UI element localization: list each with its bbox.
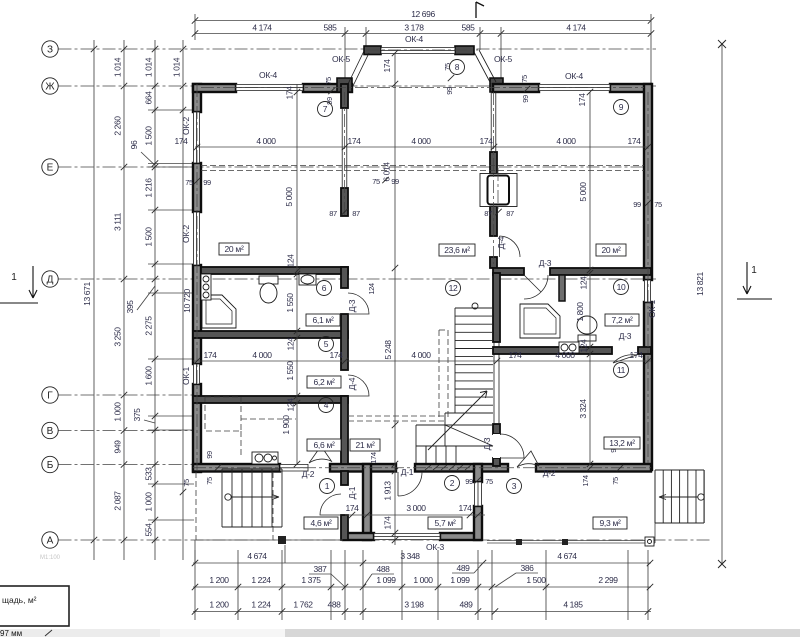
svg-text:75: 75 — [372, 177, 380, 186]
svg-text:99: 99 — [465, 477, 473, 486]
svg-text:75: 75 — [654, 200, 662, 209]
svg-text:174: 174 — [369, 452, 378, 464]
svg-text:174: 174 — [382, 59, 392, 73]
svg-text:4 174: 4 174 — [252, 23, 272, 33]
svg-text:99: 99 — [205, 451, 214, 459]
svg-text:174: 174 — [330, 350, 344, 360]
svg-text:5 000: 5 000 — [284, 187, 294, 207]
svg-text:4 000: 4 000 — [411, 350, 431, 360]
svg-text:124: 124 — [579, 339, 589, 353]
svg-text:ОК-1: ОК-1 — [181, 366, 191, 384]
svg-text:4 185: 4 185 — [563, 600, 583, 610]
svg-text:1 500: 1 500 — [144, 126, 154, 146]
svg-text:1 800: 1 800 — [575, 302, 585, 322]
svg-text:87: 87 — [506, 209, 514, 218]
svg-text:124: 124 — [367, 283, 376, 295]
svg-text:124: 124 — [286, 254, 296, 268]
svg-text:4 674: 4 674 — [247, 551, 267, 561]
svg-text:3 198: 3 198 — [404, 600, 424, 610]
svg-text:1 014: 1 014 — [172, 57, 182, 77]
svg-text:ОК-3: ОК-3 — [426, 542, 444, 552]
svg-text:7,2 м²: 7,2 м² — [611, 315, 633, 325]
svg-text:1 762: 1 762 — [293, 600, 313, 610]
svg-text:6,6 м²: 6,6 м² — [313, 440, 335, 450]
svg-text:3 178: 3 178 — [404, 23, 424, 33]
svg-text:375: 375 — [132, 408, 142, 422]
svg-text:1: 1 — [325, 481, 330, 491]
svg-text:3: 3 — [512, 481, 517, 491]
svg-text:4 000: 4 000 — [256, 136, 276, 146]
svg-text:Д-4: Д-4 — [496, 236, 506, 249]
svg-text:4 000: 4 000 — [556, 136, 576, 146]
svg-text:3 000: 3 000 — [406, 503, 426, 513]
svg-text:75: 75 — [443, 63, 452, 71]
svg-text:9,3 м²: 9,3 м² — [599, 518, 621, 528]
svg-text:949: 949 — [113, 440, 123, 454]
svg-text:174: 174 — [346, 503, 360, 513]
svg-text:1 600: 1 600 — [144, 366, 154, 386]
svg-text:1: 1 — [751, 265, 757, 276]
svg-text:Ж: Ж — [45, 81, 55, 92]
svg-text:3 324: 3 324 — [578, 399, 588, 419]
svg-text:12: 12 — [449, 283, 458, 293]
svg-text:3 348: 3 348 — [400, 551, 420, 561]
svg-text:ОК-4: ОК-4 — [565, 71, 583, 81]
svg-text:1 200: 1 200 — [209, 575, 229, 585]
svg-text:4,6 м²: 4,6 м² — [310, 518, 332, 528]
svg-text:1 000: 1 000 — [144, 492, 154, 512]
svg-text:4 674: 4 674 — [557, 551, 577, 561]
svg-text:Г: Г — [47, 390, 53, 401]
svg-text:87: 87 — [329, 209, 337, 218]
svg-text:ОК-5: ОК-5 — [494, 54, 512, 64]
svg-text:75: 75 — [611, 477, 620, 485]
svg-text:1 099: 1 099 — [450, 575, 470, 585]
svg-text:99: 99 — [203, 178, 211, 187]
svg-text:З: З — [47, 44, 53, 55]
svg-text:554: 554 — [144, 523, 154, 537]
svg-text:5: 5 — [324, 339, 329, 349]
svg-text:ОК-4: ОК-4 — [405, 34, 423, 44]
svg-text:75: 75 — [485, 477, 493, 486]
svg-text:1 550: 1 550 — [285, 361, 295, 381]
svg-text:75: 75 — [185, 178, 193, 187]
svg-text:6,1 м²: 6,1 м² — [312, 315, 334, 325]
svg-text:1 014: 1 014 — [113, 57, 123, 77]
svg-text:174: 174 — [509, 350, 523, 360]
svg-text:5 248: 5 248 — [383, 340, 393, 360]
svg-text:4: 4 — [324, 400, 329, 410]
svg-text:M1:100: M1:100 — [40, 555, 61, 561]
svg-text:97 мм: 97 мм — [0, 629, 22, 637]
svg-text:10: 10 — [617, 282, 626, 292]
svg-text:489: 489 — [460, 600, 474, 610]
svg-text:174: 174 — [630, 350, 644, 360]
svg-text:ОК-1: ОК-1 — [647, 299, 657, 317]
svg-text:Д-2: Д-2 — [543, 468, 556, 478]
svg-text:174: 174 — [581, 475, 590, 487]
svg-text:87: 87 — [484, 209, 492, 218]
svg-text:1 375: 1 375 — [301, 575, 321, 585]
svg-text:21 м²: 21 м² — [356, 440, 375, 450]
svg-text:щадь, м²: щадь, м² — [2, 595, 37, 605]
svg-text:ОК-2: ОК-2 — [181, 224, 191, 242]
svg-text:99: 99 — [521, 95, 530, 103]
svg-text:174: 174 — [285, 86, 295, 100]
svg-text:174: 174 — [383, 516, 393, 530]
svg-text:99: 99 — [445, 87, 454, 95]
svg-text:1 224: 1 224 — [251, 575, 271, 585]
svg-text:124: 124 — [286, 398, 296, 412]
svg-text:Д-3: Д-3 — [482, 437, 492, 450]
svg-text:6,2 м²: 6,2 м² — [313, 377, 335, 387]
svg-text:2 087: 2 087 — [113, 491, 123, 511]
svg-text:Б: Б — [47, 460, 54, 471]
svg-text:1 224: 1 224 — [251, 600, 271, 610]
svg-text:174: 174 — [628, 136, 642, 146]
svg-text:6: 6 — [322, 283, 327, 293]
svg-text:1 000: 1 000 — [113, 402, 123, 422]
svg-text:ОК-5: ОК-5 — [332, 54, 350, 64]
svg-text:1 913: 1 913 — [383, 481, 393, 501]
svg-text:174: 174 — [459, 503, 473, 513]
svg-text:Д-4: Д-4 — [347, 377, 357, 390]
svg-text:10 720: 10 720 — [182, 289, 192, 313]
svg-text:386: 386 — [521, 563, 535, 573]
svg-text:489: 489 — [457, 563, 471, 573]
svg-text:664: 664 — [144, 91, 154, 105]
svg-text:3 111: 3 111 — [113, 212, 123, 231]
svg-text:13 821: 13 821 — [695, 272, 705, 296]
svg-text:1 216: 1 216 — [144, 178, 154, 198]
svg-text:20 м²: 20 м² — [602, 245, 621, 255]
svg-text:87: 87 — [352, 209, 360, 218]
svg-text:23,6 м²: 23,6 м² — [444, 245, 470, 255]
svg-text:75: 75 — [324, 77, 333, 85]
svg-text:4 000: 4 000 — [252, 350, 272, 360]
svg-text:395: 395 — [125, 300, 135, 314]
svg-text:Е: Е — [47, 162, 54, 173]
svg-text:585: 585 — [462, 23, 476, 33]
svg-text:533: 533 — [144, 467, 154, 481]
svg-text:387: 387 — [314, 564, 328, 574]
svg-text:1 200: 1 200 — [209, 600, 229, 610]
svg-text:Д-2: Д-2 — [302, 469, 315, 479]
svg-text:Д-3: Д-3 — [619, 331, 632, 341]
svg-text:7: 7 — [323, 104, 328, 114]
svg-text:1 099: 1 099 — [376, 575, 396, 585]
svg-text:ОК-4: ОК-4 — [259, 70, 277, 80]
svg-text:13 671: 13 671 — [82, 282, 92, 306]
svg-text:1 000: 1 000 — [413, 575, 433, 585]
svg-text:11: 11 — [617, 365, 626, 375]
svg-text:5,7 м²: 5,7 м² — [434, 518, 456, 528]
svg-text:2 260: 2 260 — [113, 116, 123, 136]
svg-text:1 500: 1 500 — [526, 575, 546, 585]
svg-text:9: 9 — [619, 102, 624, 112]
svg-text:124: 124 — [286, 337, 296, 351]
svg-text:5 000: 5 000 — [578, 182, 588, 202]
svg-text:20 м²: 20 м² — [225, 244, 244, 254]
svg-text:174: 174 — [204, 350, 218, 360]
svg-text:1 550: 1 550 — [285, 293, 295, 313]
svg-text:3 250: 3 250 — [113, 327, 123, 347]
svg-text:Д-3: Д-3 — [347, 299, 357, 312]
svg-text:2: 2 — [450, 478, 455, 488]
svg-text:12 696: 12 696 — [411, 9, 435, 19]
svg-text:488: 488 — [328, 600, 342, 610]
svg-text:1 500: 1 500 — [144, 227, 154, 247]
svg-text:А: А — [47, 535, 54, 546]
svg-text:В: В — [47, 426, 54, 437]
svg-text:4 000: 4 000 — [411, 136, 431, 146]
svg-text:Д-1: Д-1 — [401, 467, 414, 477]
svg-text:Д-1: Д-1 — [347, 486, 357, 499]
svg-text:2 299: 2 299 — [598, 575, 618, 585]
svg-text:585: 585 — [324, 23, 338, 33]
svg-text:4 174: 4 174 — [566, 23, 586, 33]
svg-text:75: 75 — [205, 477, 214, 485]
svg-text:99: 99 — [391, 177, 399, 186]
svg-text:99: 99 — [633, 200, 641, 209]
svg-text:174: 174 — [175, 136, 189, 146]
svg-text:ОК-2: ОК-2 — [181, 116, 191, 134]
svg-text:1 900: 1 900 — [281, 415, 291, 435]
svg-text:1: 1 — [11, 272, 17, 283]
svg-text:2 275: 2 275 — [144, 316, 154, 336]
svg-text:Д-3: Д-3 — [539, 258, 552, 268]
svg-text:75: 75 — [182, 479, 191, 487]
svg-text:174: 174 — [577, 93, 587, 107]
svg-text:13,2 м²: 13,2 м² — [609, 438, 635, 448]
svg-text:488: 488 — [377, 564, 391, 574]
svg-text:1 014: 1 014 — [144, 57, 154, 77]
svg-text:75: 75 — [520, 75, 529, 83]
svg-text:8: 8 — [455, 62, 460, 72]
svg-text:124: 124 — [579, 276, 589, 290]
svg-text:Д: Д — [47, 274, 54, 285]
svg-text:4 000: 4 000 — [555, 350, 575, 360]
svg-text:96: 96 — [129, 140, 139, 149]
svg-text:174: 174 — [348, 136, 362, 146]
svg-text:174: 174 — [480, 136, 494, 146]
